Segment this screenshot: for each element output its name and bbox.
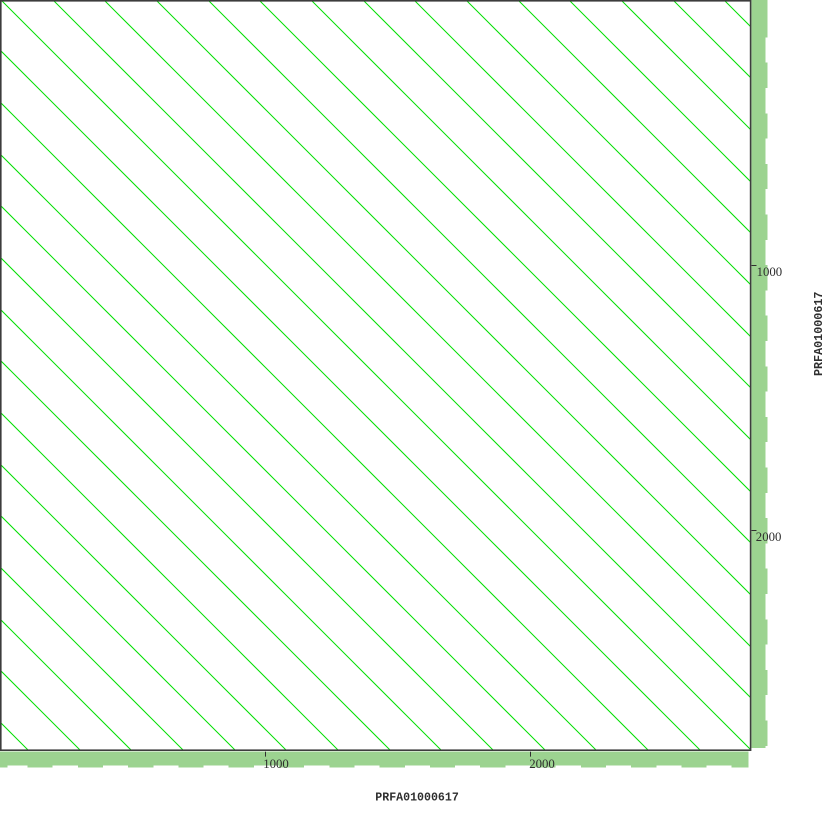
svg-text:2000: 2000 — [529, 757, 555, 771]
svg-text:1000: 1000 — [263, 757, 289, 771]
svg-text:2000: 2000 — [756, 530, 782, 544]
svg-text:PRFA01000617: PRFA01000617 — [812, 292, 826, 377]
svg-text:1000: 1000 — [757, 265, 783, 279]
svg-text:PRFA01000617: PRFA01000617 — [375, 791, 459, 805]
